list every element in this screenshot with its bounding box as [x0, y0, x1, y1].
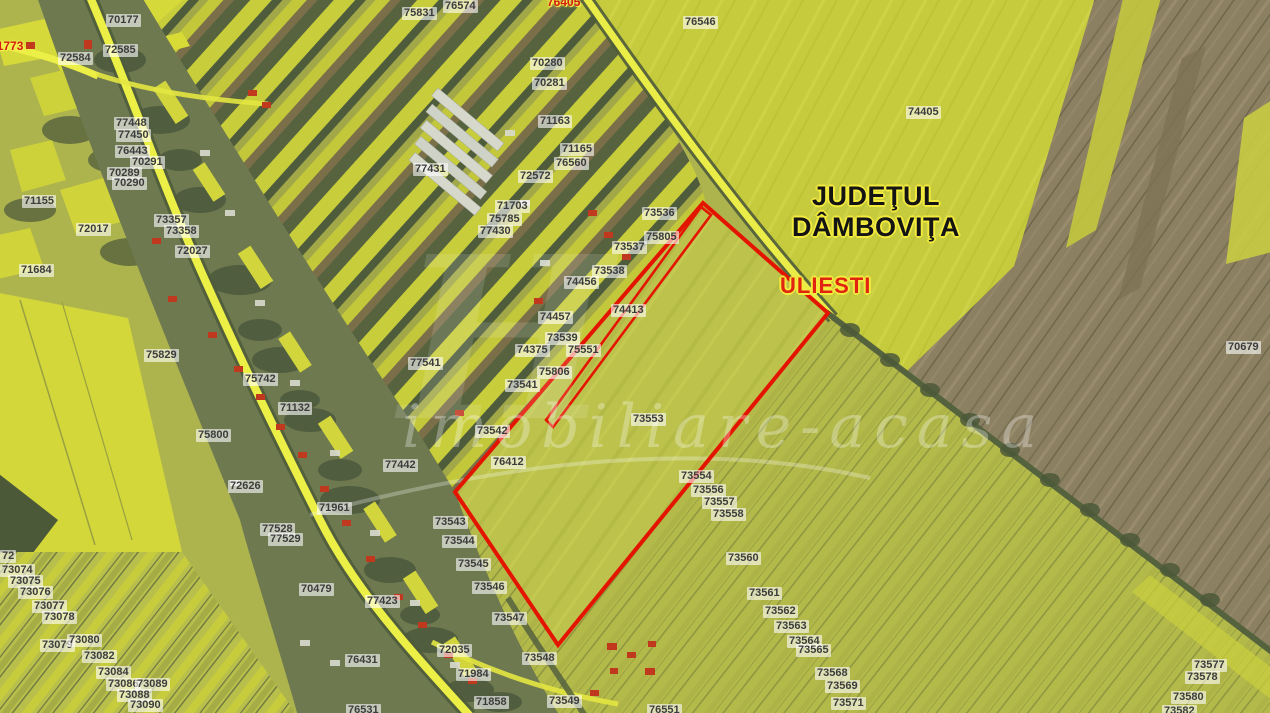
parcel-label-77423: 77423: [365, 595, 400, 608]
parcel-label-73541: 73541: [505, 379, 540, 392]
parcel-label-71132: 71132: [278, 402, 312, 415]
county-label: JUDEŢUL DÂMBOVIŢA: [766, 181, 986, 243]
parcel-label-70679: 70679: [1226, 341, 1261, 354]
parcel-label-76560: 76560: [554, 157, 589, 170]
parcel-label-77450: 77450: [116, 129, 151, 142]
parcel-label-73560: 73560: [726, 552, 761, 565]
parcel-label-73582: 73582: [1162, 705, 1197, 713]
parcel-label-70479: 70479: [299, 583, 334, 596]
parcel-label-71984: 71984: [456, 668, 491, 681]
parcel-label-75742: 75742: [243, 373, 278, 386]
parcel-label-74413: 74413: [611, 304, 646, 317]
parcel-label-73562: 73562: [763, 605, 798, 618]
parcel-label-70290: 70290: [112, 177, 147, 190]
parcel-label-73558: 73558: [711, 508, 746, 521]
parcel-label-72: 72: [0, 550, 16, 563]
parcel-label-73553: 73553: [631, 413, 666, 426]
parcel-label-76531: 76531: [346, 704, 381, 713]
parcel-label-73082: 73082: [82, 650, 117, 663]
parcel-label-73547: 73547: [492, 612, 527, 625]
parcel-label-73578: 73578: [1185, 671, 1220, 684]
parcel-label-73549: 73549: [547, 695, 582, 708]
parcel-label-73563: 73563: [774, 620, 809, 633]
parcel-label-71773: 71773: [0, 40, 25, 53]
parcel-label-74456: 74456: [564, 276, 599, 289]
parcel-label-73537: 73537: [612, 241, 647, 254]
parcel-label-73542: 73542: [475, 425, 510, 438]
parcel-label-72584: 72584: [58, 52, 93, 65]
parcel-label-75806: 75806: [537, 366, 572, 379]
parcel-label-73561: 73561: [747, 587, 782, 600]
parcel-label-72027: 72027: [175, 245, 210, 258]
cadastral-map[interactable]: H imobiliare-acasa 701777177372584725857…: [0, 0, 1270, 713]
parcel-label-76574: 76574: [443, 0, 478, 13]
parcel-label-73080: 73080: [67, 634, 102, 647]
parcel-label-76412: 76412: [491, 456, 526, 469]
parcel-label-70281: 70281: [532, 77, 567, 90]
parcel-label-71163: 71163: [538, 115, 572, 128]
parcel-label-71858: 71858: [474, 696, 509, 709]
parcel-label-70177: 70177: [106, 14, 141, 27]
parcel-label-76431: 76431: [345, 654, 380, 667]
parcel-label-73358: 73358: [164, 225, 199, 238]
parcel-label-73568: 73568: [815, 667, 850, 680]
parcel-label-73078: 73078: [42, 611, 77, 624]
parcel-label-71165: 71165: [560, 143, 594, 156]
parcel-label-77431: 77431: [413, 163, 448, 176]
county-label-line2: DÂMBOVIŢA: [766, 212, 986, 243]
parcel-label-73565: 73565: [796, 644, 831, 657]
parcel-label-71961: 71961: [317, 502, 352, 515]
parcel-label-72572: 72572: [518, 170, 553, 183]
parcel-label-77541: 77541: [408, 357, 443, 370]
parcel-label-77529: 77529: [268, 533, 303, 546]
parcel-label-72035: 72035: [437, 644, 472, 657]
parcel-label-73580: 73580: [1171, 691, 1206, 704]
parcel-label-73076: 73076: [18, 586, 53, 599]
parcel-label-73544: 73544: [442, 535, 477, 548]
parcel-label-75829: 75829: [144, 349, 179, 362]
parcel-label-77430: 77430: [478, 225, 513, 238]
parcel-label-75805: 75805: [644, 231, 679, 244]
parcel-label-71703: 71703: [495, 200, 530, 213]
parcel-label-73548: 73548: [522, 652, 557, 665]
county-label-line1: JUDEŢUL: [766, 181, 986, 212]
parcel-label-72585: 72585: [103, 44, 138, 57]
parcel-label-73545: 73545: [456, 558, 491, 571]
parcel-label-73546: 73546: [472, 581, 507, 594]
parcel-label-73571: 73571: [831, 697, 866, 710]
parcel-label-73569: 73569: [825, 680, 860, 693]
parcel-label-76546: 76546: [683, 16, 718, 29]
parcel-label-72017: 72017: [76, 223, 111, 236]
parcel-label-75800: 75800: [196, 429, 231, 442]
parcel-label-77442: 77442: [383, 459, 418, 472]
parcel-label-73554: 73554: [679, 470, 714, 483]
parcel-label-73536: 73536: [642, 207, 677, 220]
locality-label: ULIESTI: [780, 273, 871, 299]
parcel-labels-layer: 7017771773725847258575831765747640576546…: [0, 0, 1270, 713]
parcel-label-72626: 72626: [228, 480, 263, 493]
parcel-label-75831: 75831: [402, 7, 437, 20]
parcel-label-74375: 74375: [515, 344, 550, 357]
parcel-label-73090: 73090: [128, 699, 163, 712]
parcel-label-70280: 70280: [530, 57, 565, 70]
parcel-label-74405: 74405: [906, 106, 941, 119]
parcel-label-71155: 71155: [22, 195, 56, 208]
parcel-label-73543: 73543: [433, 516, 468, 529]
parcel-label-76405: 76405: [545, 0, 582, 9]
parcel-label-75551: 75551: [566, 344, 601, 357]
parcel-label-71684: 71684: [19, 264, 54, 277]
parcel-label-74457: 74457: [538, 311, 573, 324]
parcel-label-76551: 76551: [647, 704, 682, 713]
